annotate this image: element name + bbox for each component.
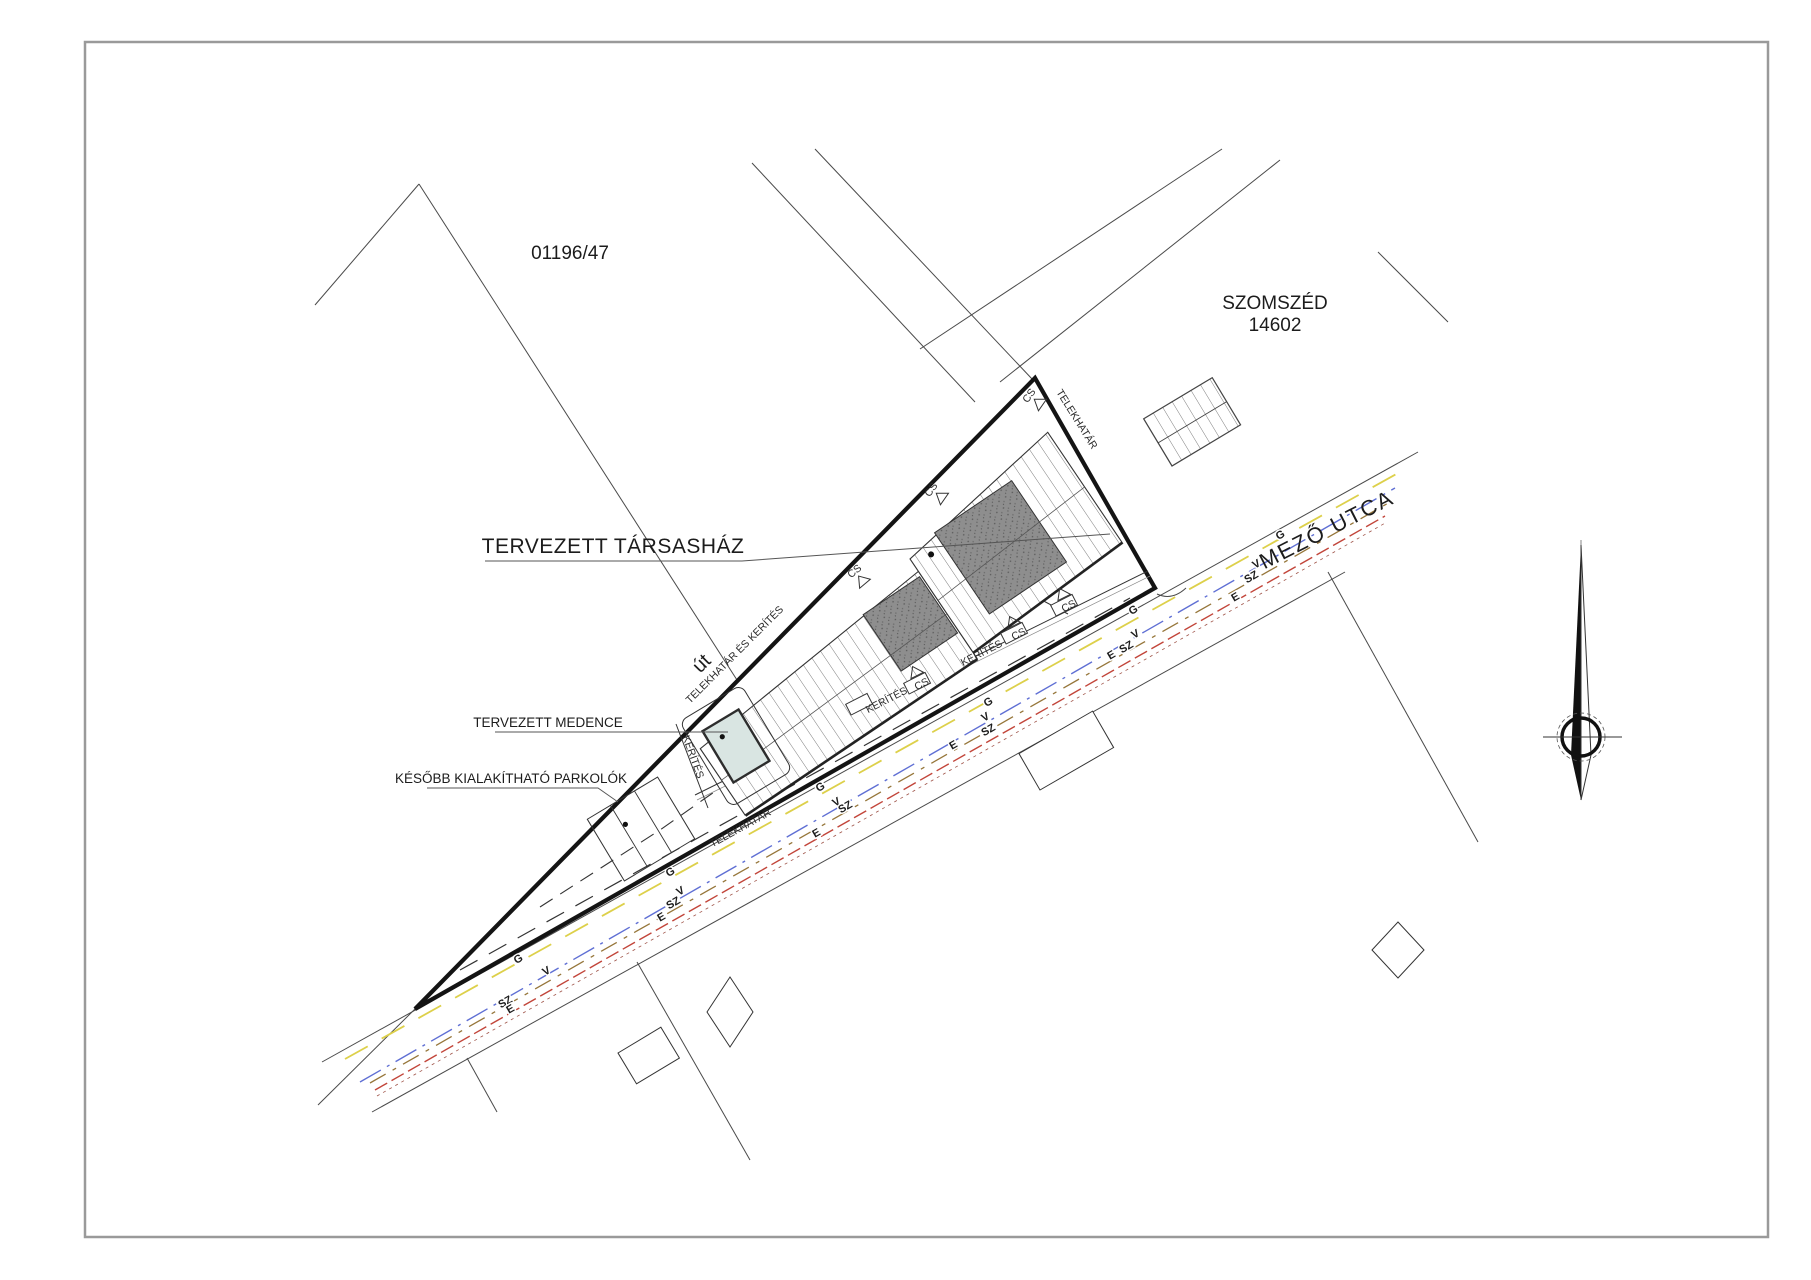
site-plan-drawing: G G G G G G V V V V V V SZ SZ SZ SZ SZ S… [0, 0, 1811, 1280]
pool-annotation: TERVEZETT MEDENCE [473, 715, 623, 730]
neighbor-name-label: SZOMSZÉD [1222, 293, 1328, 314]
parcel-number-label: 01196/47 [531, 243, 609, 264]
parking-annotation: KÉSŐBB KIALAKÍTHATÓ PARKOLÓK [395, 771, 627, 786]
neighbor-number-label: 14602 [1249, 315, 1302, 336]
plan-title: TERVEZETT TÁRSASHÁZ [482, 535, 745, 558]
